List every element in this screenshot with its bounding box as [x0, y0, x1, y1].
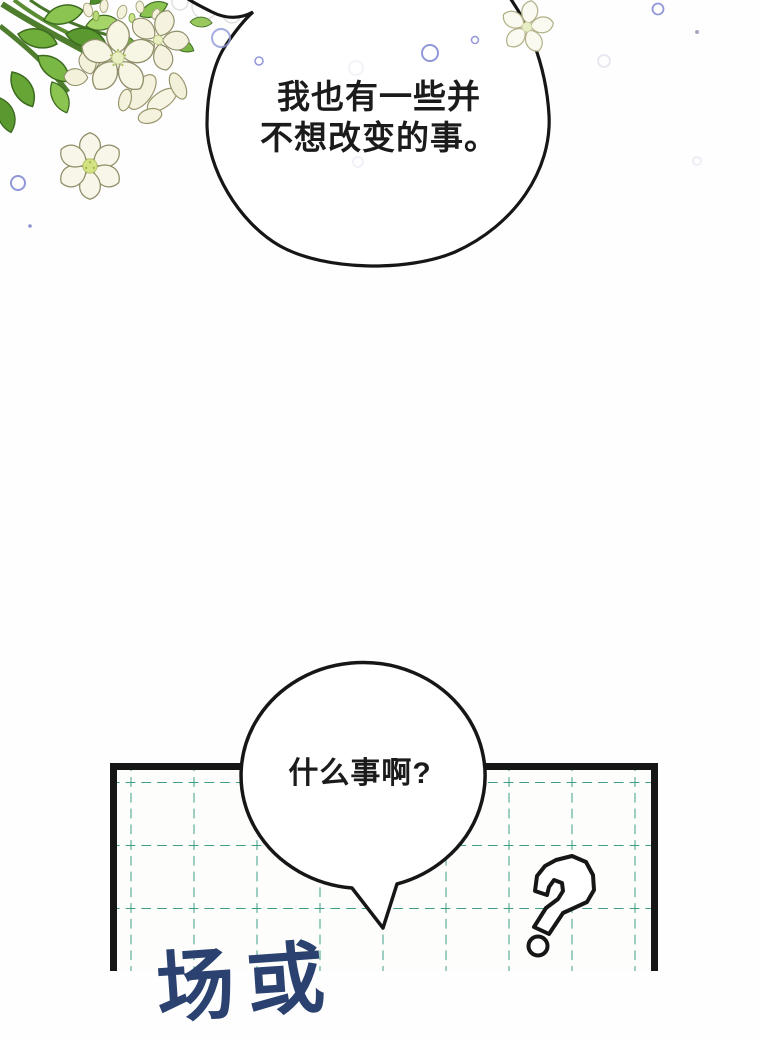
bottom-bubble-text: 什么事啊? — [270, 757, 450, 791]
comic-page: { "page": { "bg_color": "#fefefe", "ink_… — [0, 0, 760, 971]
top-bubble-line1: 我也有一些并 — [253, 76, 505, 117]
top-bubble-line2: 不想改变的事。 — [253, 117, 505, 158]
top-bubble-text: 我也有一些并 不想改变的事。 — [253, 76, 505, 158]
partial-caption-text: 场或 — [152, 909, 419, 1039]
flower-bouquet-icon — [0, 0, 213, 134]
single-flower-icon — [56, 133, 124, 200]
bottom-bubble-line1: 什么事啊? — [270, 757, 450, 791]
